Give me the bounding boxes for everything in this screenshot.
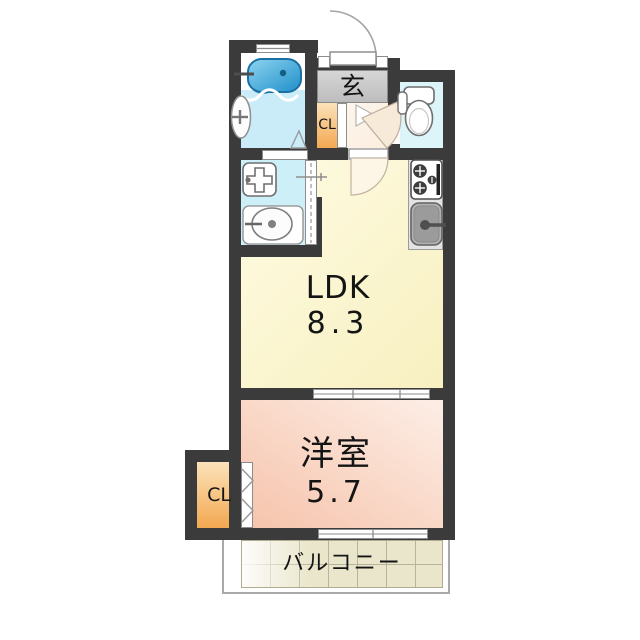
- closet-lower-door: [241, 462, 253, 528]
- closet-lower-label: CL: [197, 462, 241, 528]
- entrance-door-jamb: [376, 56, 388, 68]
- closet-upper-label-text: CL: [318, 118, 336, 133]
- bedroom-name: 洋室: [266, 426, 406, 475]
- entrance-door-swing-icon: [330, 11, 376, 65]
- ldk-size: 8.3: [273, 306, 403, 341]
- bath-door-opening: [262, 150, 308, 160]
- ldk-name: LDK: [273, 270, 403, 306]
- toilet-door-opening: [388, 108, 400, 144]
- balcony-window: [318, 529, 428, 539]
- hallway-floor: [347, 103, 388, 148]
- bedroom-size: 5.7: [266, 475, 406, 510]
- wall-segment: [185, 450, 197, 540]
- ldk-label: LDK 8.3: [273, 270, 403, 341]
- bathroom-floor: [241, 90, 305, 150]
- washroom-sliding-door: [305, 160, 317, 245]
- ldk-door-opening: [348, 148, 388, 160]
- bath-window: [256, 44, 290, 53]
- entrance-door-jamb: [318, 56, 330, 68]
- toilet-room: [400, 82, 443, 148]
- closet-upper-label: CL: [315, 103, 339, 148]
- wall-segment: [443, 70, 455, 540]
- balcony-label: バルコニー: [241, 549, 443, 579]
- kitchen-unit: [408, 156, 443, 250]
- genkan-label-text: 玄: [340, 73, 365, 101]
- floor-plan: 玄 CL LDK 8.3 洋室 5.7 CL バルコニー: [0, 0, 640, 640]
- genkan-label: 玄: [317, 70, 388, 103]
- closet-lower-label-text: CL: [207, 485, 231, 506]
- bedroom-label: 洋室 5.7: [266, 426, 406, 510]
- balcony-label-text: バルコニー: [282, 552, 402, 576]
- ldk-bedroom-sliding-door: [313, 389, 430, 399]
- wall-segment: [229, 245, 317, 257]
- bathroom-tub-zone: [241, 53, 305, 93]
